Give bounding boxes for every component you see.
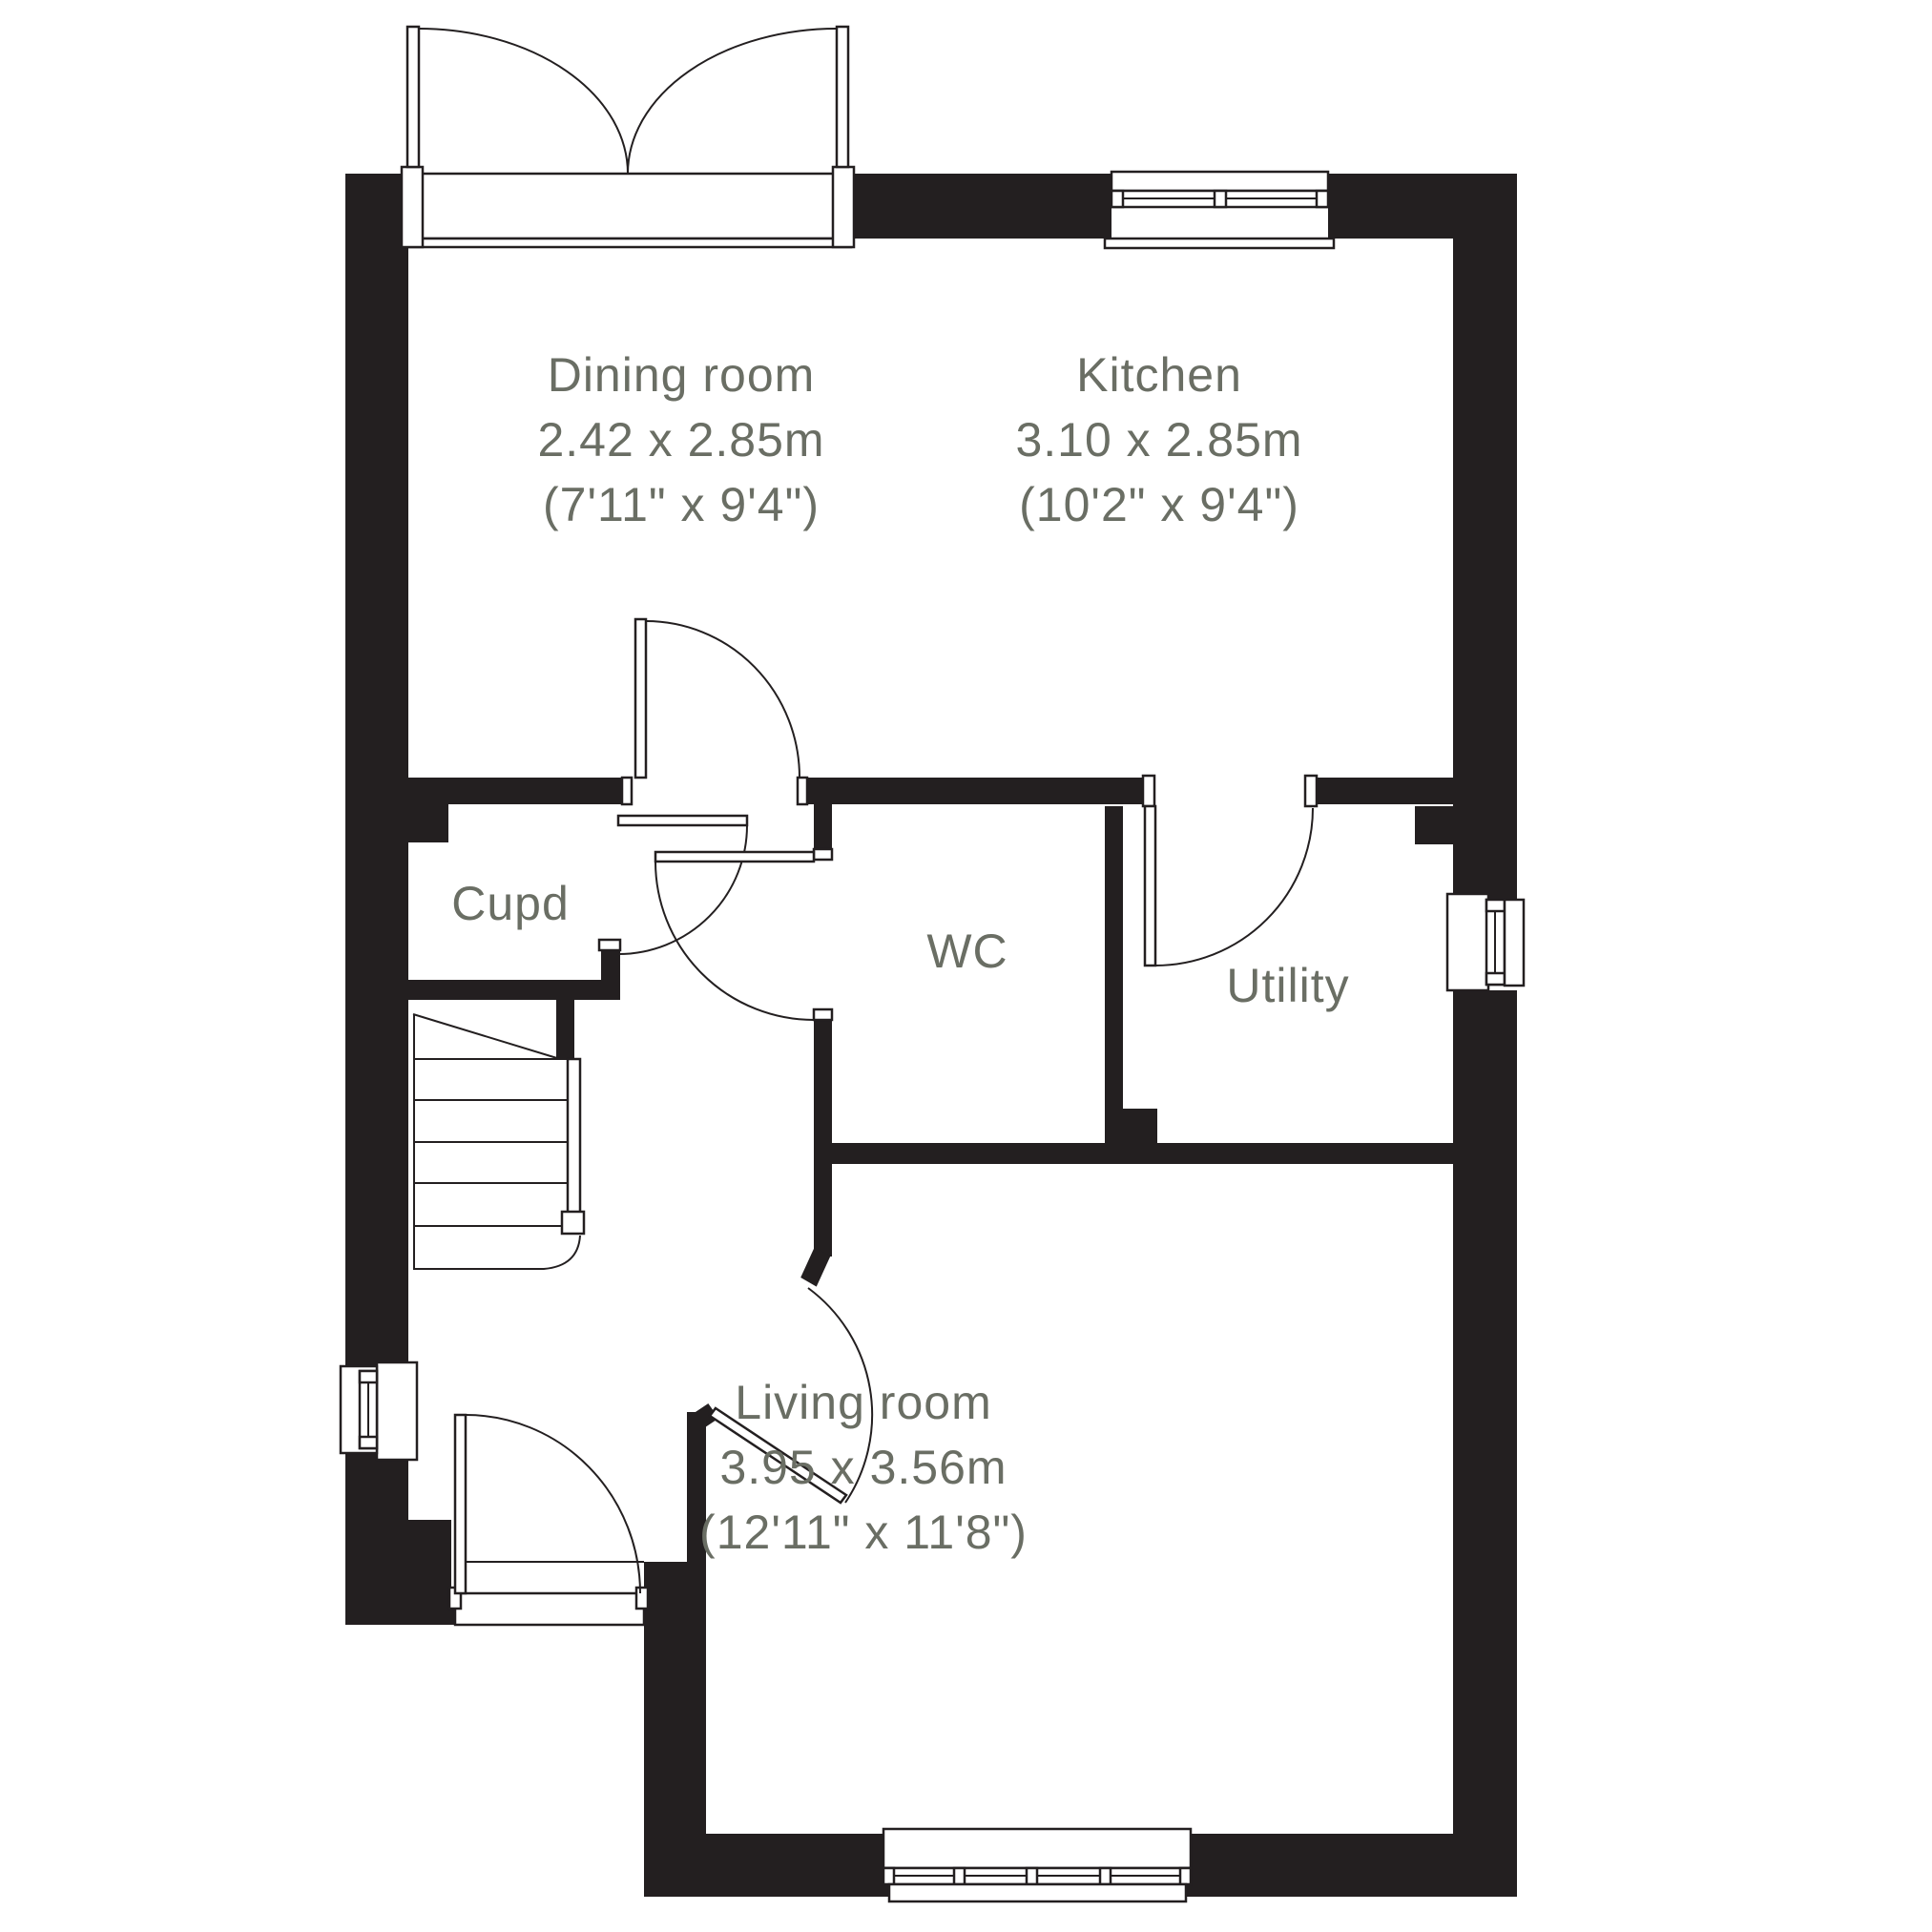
living-window-inner [883, 1829, 1191, 1868]
dining-door-jamb-right [798, 778, 807, 804]
right-wall-step [1415, 806, 1517, 844]
stair-bottom-edge [413, 1236, 580, 1269]
floor-plan-drawing: Dining room 2.42 x 2.85m (7'11" x 9'4") … [0, 0, 1932, 1932]
top-wall-right [1328, 174, 1517, 239]
hall-window-stile-bottom [360, 1437, 377, 1448]
living-window-sill [889, 1884, 1186, 1901]
utility-window-stile-top [1486, 900, 1505, 911]
utility-step-block [1121, 1109, 1157, 1145]
top-wall-mid [842, 174, 1111, 239]
utility-window-outer [1505, 900, 1524, 986]
living-room-size-imperial: (12'11" x 11'8") [699, 1506, 1028, 1559]
dining-door-jamb-left [622, 778, 632, 804]
cupboard-bottom-wall [408, 980, 620, 1000]
living-room-size-metric: 3.95 x 3.56m [719, 1441, 1007, 1494]
french-doors [402, 27, 854, 247]
living-window-stile-4 [1100, 1868, 1111, 1884]
dining-room-label: Dining room [548, 348, 816, 402]
right-wall-lower [1453, 990, 1517, 1897]
divider-wall-mid [801, 778, 1143, 804]
utility-door-leaf [1145, 806, 1155, 966]
front-door-threshold [455, 1593, 644, 1625]
front-door [449, 1415, 648, 1625]
french-door-sill [405, 239, 851, 247]
dining-door-swing [646, 621, 800, 778]
kitchen-window [1105, 172, 1334, 248]
hall-window-sill [377, 1362, 417, 1460]
kitchen-window-outer [1111, 172, 1328, 191]
kitchen-window-sill [1105, 239, 1334, 248]
kitchen-window-stile-mid [1215, 191, 1226, 207]
living-window-stile-3 [1027, 1868, 1037, 1884]
utility-door-jamb-left [1143, 776, 1154, 806]
stair-cut-line [413, 1014, 560, 1059]
cupboard-label: Cupd [451, 877, 570, 930]
stair-newel-post [562, 1212, 584, 1234]
french-door-jamb-left [402, 167, 423, 247]
cupboard-door-jamb [599, 940, 620, 950]
french-door-leaf-right [837, 27, 848, 167]
living-window-stile-5 [1180, 1868, 1191, 1884]
french-door-leaf-left [407, 27, 419, 167]
wc-left-wall [814, 1019, 832, 1257]
wc-door [655, 849, 832, 1020]
dining-room-size-imperial: (7'11" x 9'4") [543, 478, 820, 531]
divider-wall-left [408, 778, 630, 804]
floor-plan: Dining room 2.42 x 2.85m (7'11" x 9'4") … [0, 0, 1932, 1932]
living-bottom-wall-left [644, 1834, 890, 1897]
kitchen-window-stile-left [1111, 191, 1123, 207]
wc-door-jamb-bottom [814, 1009, 832, 1020]
front-door-leaf [455, 1415, 466, 1593]
hall-window-stile-top [360, 1371, 377, 1382]
living-door-upper-stub [807, 1252, 822, 1285]
utility-door-jamb-right [1305, 776, 1317, 806]
cupboard-right-wall [601, 949, 620, 999]
living-top-wall [832, 1143, 1455, 1164]
divider-wall-right [1317, 778, 1517, 804]
hall-bottom-wall [345, 1593, 455, 1625]
living-window-stile-2 [954, 1868, 965, 1884]
wc-door-leaf [655, 852, 814, 862]
utility-door-swing [1155, 808, 1313, 966]
living-room-label: Living room [735, 1376, 991, 1429]
kitchen-window-stile-right [1317, 191, 1328, 207]
utility-divider-wall [1105, 806, 1123, 1145]
utility-window-sill [1447, 894, 1488, 990]
french-door-swing-left [419, 29, 628, 174]
dining-hall-door [622, 619, 807, 804]
living-window-stile-1 [883, 1868, 894, 1884]
wc-door-jamb-top [814, 849, 832, 860]
dining-room-size-metric: 2.42 x 2.85m [537, 413, 824, 467]
cupboard-door-swing [618, 825, 747, 954]
kitchen-label: Kitchen [1076, 348, 1242, 402]
cupboard-corner-block [408, 804, 448, 842]
utility-door [1143, 776, 1317, 966]
kitchen-size-metric: 3.10 x 2.85m [1015, 413, 1302, 467]
walls [345, 174, 1517, 1897]
front-door-swing [466, 1415, 640, 1593]
front-door-jamb-right [636, 1588, 648, 1609]
french-door-jamb-right [833, 167, 854, 247]
wc-door-swing [655, 862, 814, 1020]
utility-label: Utility [1226, 959, 1349, 1012]
dining-door-leaf [635, 619, 646, 778]
french-door-swing-right [628, 29, 837, 174]
stair-handrail [568, 1059, 580, 1215]
wc-label: WC [926, 924, 1008, 978]
french-door-threshold [413, 174, 842, 239]
utility-window [1447, 894, 1524, 990]
hall-window [341, 1362, 417, 1460]
stair-stub-wall [556, 1000, 574, 1059]
kitchen-size-imperial: (10'2" x 9'4") [1019, 478, 1299, 531]
left-wall-upper [345, 174, 408, 1366]
cupboard-door-leaf [618, 816, 747, 825]
utility-window-stile-bottom [1486, 973, 1505, 985]
living-window [883, 1829, 1191, 1901]
left-wall-lower [345, 1453, 408, 1593]
